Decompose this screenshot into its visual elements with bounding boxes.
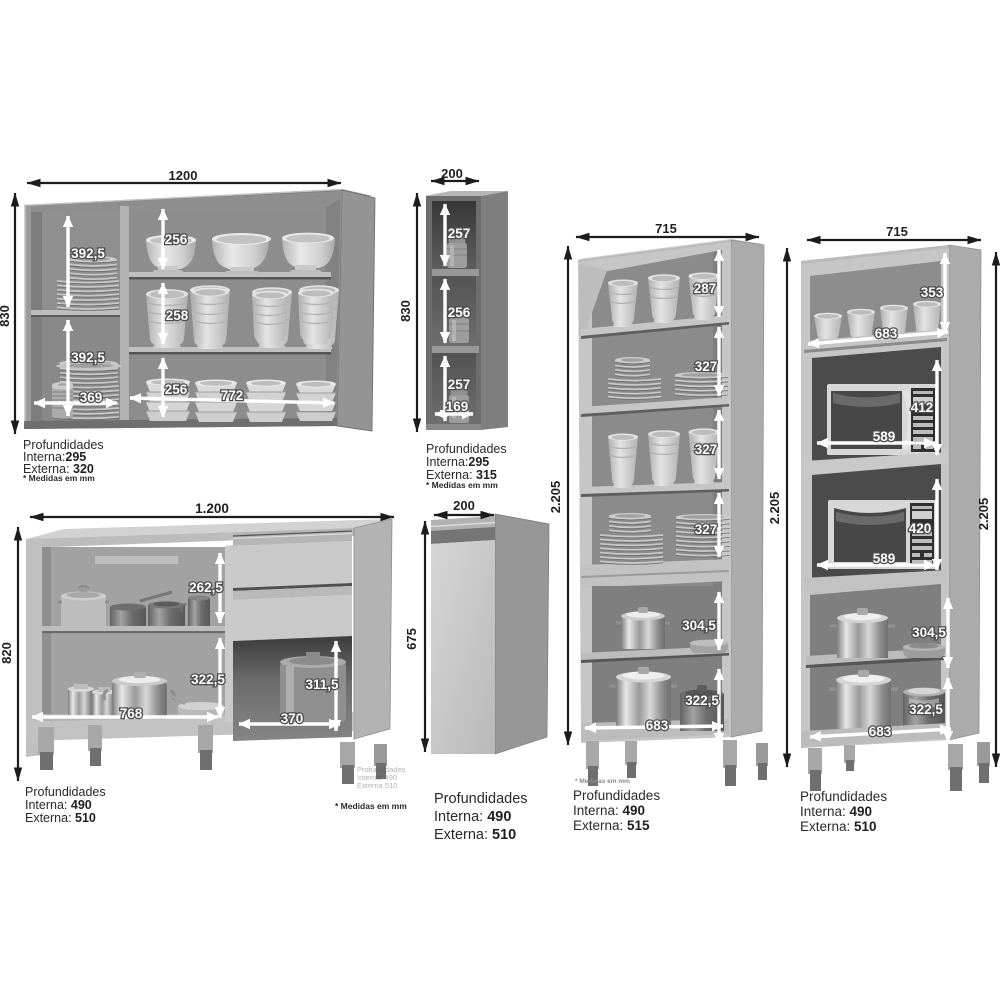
svg-text:327: 327 [695,359,718,374]
svg-text:Externa 510: Externa 510 [357,781,397,790]
svg-text:256: 256 [448,305,471,320]
svg-text:589: 589 [873,429,896,444]
svg-text:Externa: 510: Externa: 510 [434,827,516,843]
svg-text:322,5: 322,5 [191,672,225,687]
svg-text:200: 200 [453,498,475,513]
svg-text:258: 258 [166,308,189,323]
svg-text:Externa: 510: Externa: 510 [800,819,877,834]
svg-text:820: 820 [0,642,14,664]
svg-text:304,5: 304,5 [682,618,716,633]
svg-text:262,5: 262,5 [189,580,223,595]
svg-text:2.205: 2.205 [548,481,563,514]
svg-text:287: 287 [694,281,717,296]
svg-text:392,5: 392,5 [71,246,105,261]
svg-text:683: 683 [869,724,892,739]
svg-text:1.200: 1.200 [195,501,229,516]
svg-text:257: 257 [448,377,471,392]
svg-text:* Medidas em mm: * Medidas em mm [23,473,95,483]
svg-text:Profundidades: Profundidades [573,788,660,803]
svg-text:257: 257 [448,226,471,241]
svg-text:169: 169 [446,399,469,414]
svg-text:772: 772 [221,388,244,403]
svg-text:Externa: 515: Externa: 515 [573,818,650,833]
svg-text:Profundidades: Profundidades [25,785,106,799]
svg-text:304,5: 304,5 [912,625,946,640]
svg-text:675: 675 [404,628,419,650]
svg-text:412: 412 [911,400,934,415]
svg-text:715: 715 [655,221,677,236]
svg-text:Interna: 490: Interna: 490 [25,798,92,812]
svg-text:Interna: 490: Interna: 490 [573,803,645,818]
svg-text:369: 369 [80,390,103,405]
svg-text:322,5: 322,5 [685,693,719,708]
svg-text:830: 830 [398,300,413,322]
svg-text:2.205: 2.205 [767,492,782,525]
svg-text:715: 715 [886,224,908,239]
svg-text:2.205: 2.205 [976,498,991,531]
svg-text:* Medidas em mm: * Medidas em mm [426,480,498,490]
svg-text:Profundidades: Profundidades [800,789,887,804]
svg-text:322,5: 322,5 [909,702,943,717]
svg-text:Externa: 510: Externa: 510 [25,811,96,825]
svg-text:Interna:295: Interna:295 [426,455,489,469]
svg-text:* Medidas em mm: * Medidas em mm [575,778,630,785]
svg-text:256: 256 [165,382,188,397]
svg-text:683: 683 [875,326,898,341]
svg-text:* Medidas em mm: * Medidas em mm [335,801,407,811]
svg-text:327: 327 [695,442,718,457]
svg-text:370: 370 [281,711,304,726]
svg-text:830: 830 [0,305,12,327]
svg-text:589: 589 [873,551,896,566]
svg-text:1200: 1200 [169,168,198,183]
svg-text:Profundidades: Profundidades [426,442,507,456]
svg-text:683: 683 [646,718,669,733]
svg-text:353: 353 [921,285,944,300]
svg-text:311,5: 311,5 [305,677,339,692]
svg-text:256: 256 [165,232,188,247]
svg-text:768: 768 [120,706,143,721]
svg-text:Interna: 490: Interna: 490 [434,809,511,825]
svg-text:Profundidades: Profundidades [434,791,528,807]
svg-text:392,5: 392,5 [71,350,105,365]
svg-text:327: 327 [695,522,718,537]
svg-text:200: 200 [441,166,463,181]
svg-text:420: 420 [909,521,932,536]
svg-text:Interna: 490: Interna: 490 [800,804,872,819]
